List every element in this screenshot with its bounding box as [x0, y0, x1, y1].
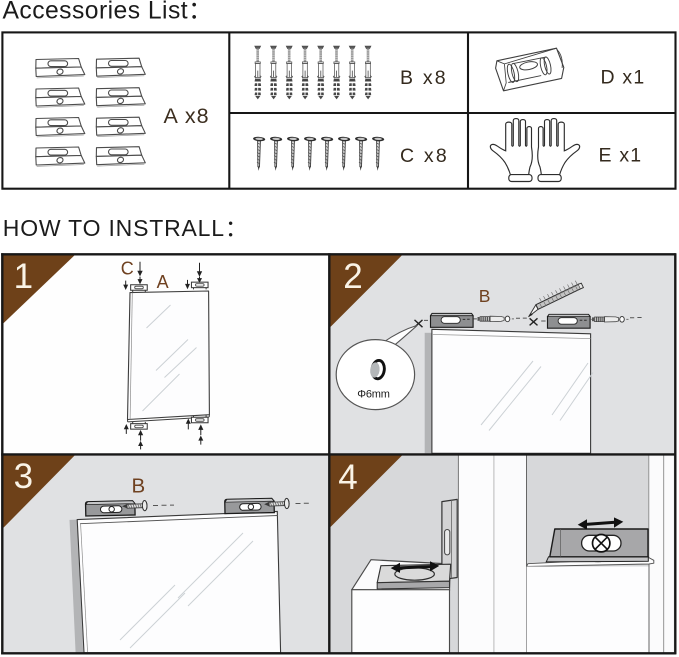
svg-text:4: 4	[338, 458, 357, 497]
svg-text:A: A	[157, 272, 169, 292]
svg-text:3: 3	[14, 457, 33, 496]
svg-text:B: B	[479, 286, 491, 306]
svg-text:Φ6mm: Φ6mm	[357, 389, 389, 401]
svg-text:D x1: D x1	[601, 67, 646, 89]
svg-text:2: 2	[343, 257, 362, 296]
svg-text:HOW TO INSTRALL：: HOW TO INSTRALL：	[3, 215, 249, 241]
svg-text:E x1: E x1	[599, 145, 643, 167]
svg-text:C x8: C x8	[400, 145, 449, 167]
svg-text:C: C	[121, 259, 134, 279]
svg-text:1: 1	[14, 257, 33, 296]
svg-text:B x8: B x8	[400, 67, 448, 89]
svg-text:B: B	[132, 475, 146, 498]
svg-text:Accessories List：: Accessories List：	[3, 0, 214, 24]
svg-text:A x8: A x8	[164, 104, 210, 128]
